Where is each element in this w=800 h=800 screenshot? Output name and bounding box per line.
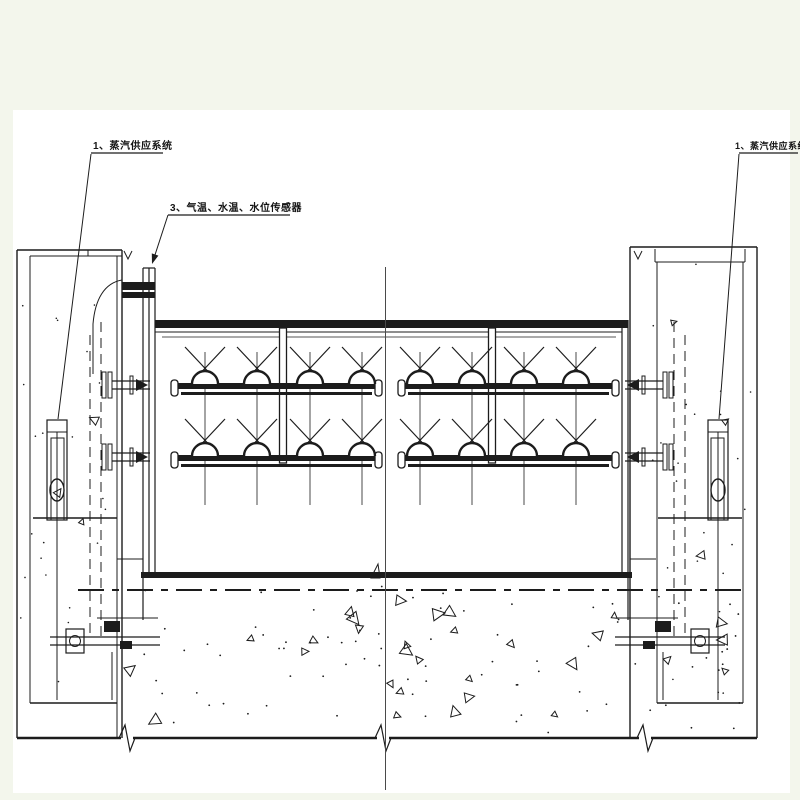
drawing-sheet: 1、蒸汽供应系统 3、气温、水温、水位传感器 1、蒸汽供应系统 — [0, 0, 800, 800]
section-drawing: 1、蒸汽供应系统 3、气温、水温、水位传感器 1、蒸汽供应系统 — [0, 0, 800, 800]
inlet-duct-band — [122, 282, 155, 290]
tank-floor — [141, 572, 632, 578]
feed-pipe — [280, 328, 287, 463]
inlet-duct-band — [122, 292, 155, 298]
tank-ceiling-beam — [155, 320, 628, 328]
label-text: 1、蒸汽供应系统 — [735, 140, 800, 151]
label-text: 3、气温、水温、水位传感器 — [170, 201, 303, 214]
feed-pipe — [489, 328, 496, 463]
label-text: 1、蒸汽供应系统 — [93, 139, 173, 152]
